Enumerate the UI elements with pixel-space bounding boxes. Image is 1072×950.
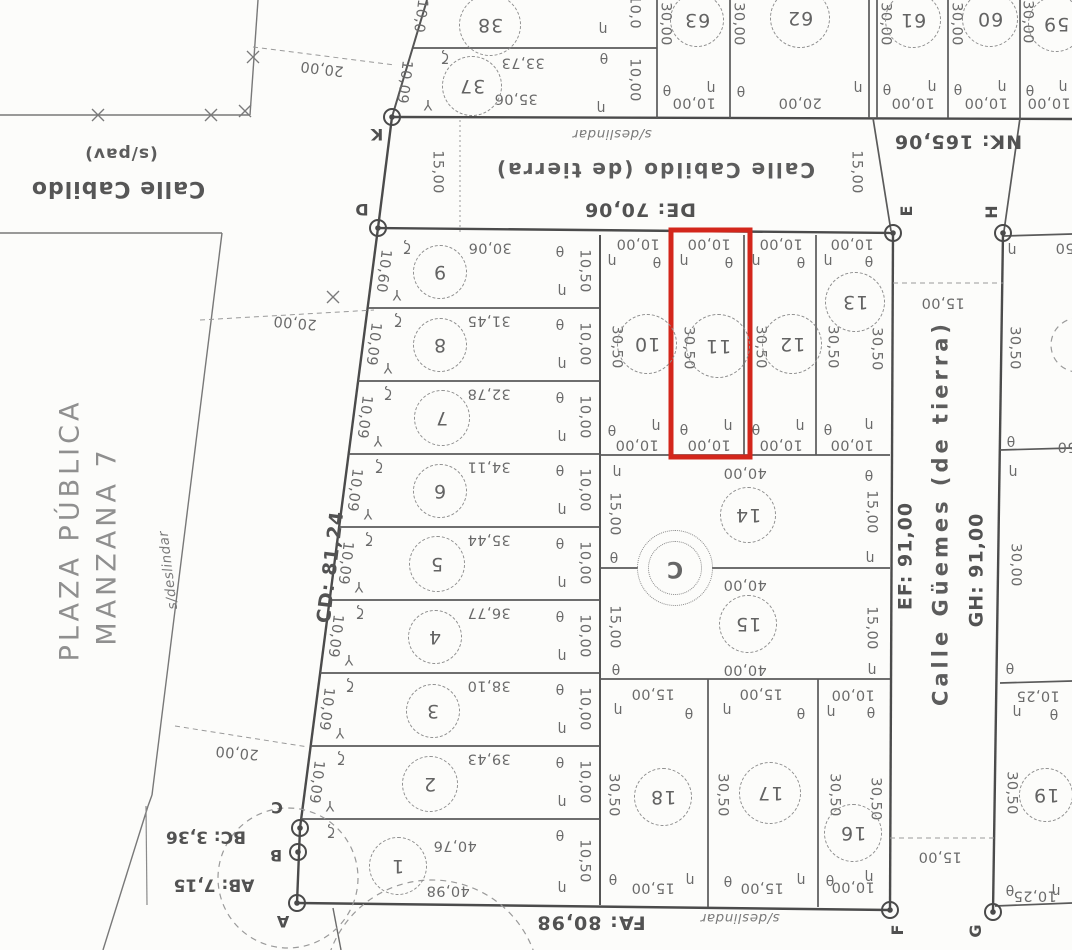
dimension-label: 15,00 bbox=[430, 150, 445, 194]
lot-number-circle-61: 61 bbox=[885, 0, 941, 48]
angle-symbol: η bbox=[652, 419, 661, 433]
lot-number-circle-63: 63 bbox=[670, 0, 724, 47]
dimension-label: 10,00 bbox=[616, 236, 660, 251]
lot-number-circle-59: 59 bbox=[1028, 0, 1072, 52]
dimension-label: 10,00 bbox=[577, 395, 592, 439]
angle-symbol: Y bbox=[326, 798, 335, 812]
angle-symbol: θ bbox=[867, 704, 876, 718]
dimension-label: 10,09 bbox=[363, 322, 383, 367]
dimension-label: 15,00 bbox=[739, 686, 783, 701]
angle-symbol: η bbox=[866, 551, 875, 565]
angle-symbol: θ bbox=[556, 389, 565, 403]
dimension-label: 10,00 bbox=[831, 687, 875, 702]
angle-symbol: η bbox=[1059, 80, 1068, 94]
lot-number-circle-62: 62 bbox=[770, 0, 830, 48]
lot-number: 5 bbox=[430, 553, 443, 575]
lot-number: 16 bbox=[840, 822, 866, 844]
angle-symbol: θ bbox=[685, 705, 694, 719]
lot-number-circle-16: 16 bbox=[824, 804, 882, 862]
vertex-label-h: H bbox=[984, 205, 1000, 218]
dimension-label: 10,0 bbox=[411, 0, 430, 34]
dimension-label: 10,00 bbox=[577, 614, 592, 658]
lot-number-circle-9: 9 bbox=[413, 245, 467, 299]
dimension-label: 33,73 bbox=[501, 55, 545, 70]
angle-symbol: θ bbox=[556, 462, 565, 476]
angle-symbol: θ bbox=[608, 422, 617, 436]
lot-number: 7 bbox=[435, 407, 448, 429]
dimension-label: 40,76 bbox=[433, 838, 477, 853]
lot-number: 38 bbox=[477, 14, 503, 36]
lot-number-circle-13: 13 bbox=[825, 272, 885, 332]
lot-number: 63 bbox=[684, 9, 710, 31]
angle-symbol: Y bbox=[424, 97, 433, 111]
angle-symbol: θ bbox=[1006, 882, 1015, 896]
angle-symbol: η bbox=[558, 430, 567, 444]
lot-number: 3 bbox=[426, 700, 439, 722]
lot-number-circle-1: 1 bbox=[369, 837, 427, 895]
angle-symbol: η bbox=[558, 649, 567, 663]
vertex-label-e: E bbox=[899, 206, 915, 217]
dimension-label: 40,98 bbox=[426, 883, 470, 898]
lot-number-circle-12: 12 bbox=[762, 314, 822, 374]
angle-symbol: η bbox=[686, 873, 695, 887]
dimension-label: 20,00 bbox=[273, 313, 318, 331]
angle-symbol: ζ bbox=[375, 459, 383, 473]
angle-symbol: η bbox=[752, 254, 761, 268]
dimension-label: 10,00 bbox=[830, 437, 874, 452]
angle-symbol: η bbox=[707, 81, 716, 95]
angle-symbol: η bbox=[558, 722, 567, 736]
dimension-label: 10,00 bbox=[627, 58, 642, 102]
dimension-label: 10,50 bbox=[577, 249, 592, 293]
lot-number: 8 bbox=[433, 334, 446, 356]
dimension-label: 10,00 bbox=[687, 437, 731, 452]
angle-symbol: ζ bbox=[356, 605, 364, 619]
lot-number-circle-6: 6 bbox=[413, 464, 467, 518]
angle-symbol: θ bbox=[609, 871, 618, 885]
lot-number: 13 bbox=[842, 291, 868, 313]
dimension-label: 10,00 bbox=[831, 879, 875, 894]
angle-symbol: Y bbox=[336, 725, 345, 739]
boundary-label-gh: GH: 91,00 bbox=[968, 513, 987, 628]
dimension-label: 10,00 bbox=[577, 322, 592, 366]
street-name-guemes: Calle Güemes (de tierra) bbox=[931, 320, 952, 706]
dimension-label: 40,00 bbox=[723, 577, 767, 592]
boundary-label-bc: BC: 3,36 bbox=[166, 828, 246, 845]
lot-number-circle-18: 18 bbox=[634, 768, 692, 826]
angle-symbol: η bbox=[723, 703, 732, 717]
dimension-label: 10,09 bbox=[306, 760, 326, 805]
angle-symbol: θ bbox=[1006, 660, 1015, 674]
lot-number: 9 bbox=[433, 261, 446, 283]
angle-symbol: ζ bbox=[384, 386, 392, 400]
dimension-label: 10,00 bbox=[687, 236, 731, 251]
angle-symbol: θ bbox=[737, 83, 746, 97]
boundary-label-fa: FA: 80,98 bbox=[536, 913, 645, 932]
angle-symbol: η bbox=[1052, 884, 1061, 898]
angle-symbol: η bbox=[614, 703, 623, 717]
lot-number: 14 bbox=[735, 504, 761, 526]
dimension-label: 40,00 bbox=[723, 465, 767, 480]
note-deslindar-plaza: s/deslindar bbox=[157, 530, 180, 611]
dimension-label: 30,50 bbox=[606, 773, 621, 817]
angle-symbol: η bbox=[998, 80, 1007, 94]
dimension-label: 10,09 bbox=[325, 614, 345, 659]
angle-symbol: ζ bbox=[394, 313, 402, 327]
angle-symbol: η bbox=[597, 101, 606, 115]
angle-symbol: η bbox=[558, 284, 567, 298]
angle-symbol: ζ bbox=[365, 532, 373, 546]
dimension-label: 10,25 bbox=[1016, 688, 1060, 703]
dimension-label: 15,00 bbox=[849, 150, 864, 194]
dimension-label: 30,06 bbox=[468, 240, 512, 255]
angle-symbol: η bbox=[558, 795, 567, 809]
angle-symbol: ζ bbox=[441, 50, 449, 64]
dimension-label: 10,0 bbox=[627, 0, 642, 29]
angle-symbol: η bbox=[854, 81, 863, 95]
dimension-label: 30,00 bbox=[731, 2, 746, 46]
lot-number: 19 bbox=[1033, 784, 1059, 806]
vertex-label-k: K bbox=[371, 126, 383, 142]
angle-symbol: θ bbox=[680, 421, 689, 435]
angle-symbol: θ bbox=[653, 254, 662, 268]
dimension-label: 10,00 bbox=[830, 236, 874, 251]
plaza-name-line1: PLAZA PÚBLICA bbox=[57, 399, 84, 662]
boundary-label-ab: AB: 7,15 bbox=[174, 876, 255, 893]
vertex-label-a: A bbox=[277, 913, 289, 929]
dimension-label: 10,50 bbox=[1057, 439, 1072, 454]
dimension-label: 10,09 bbox=[394, 60, 414, 105]
dimension-label: 10,00 bbox=[672, 95, 716, 110]
angle-symbol: Y bbox=[364, 506, 373, 520]
plan-labels-layer: Calle Cabildo(s/pav)Calle Cabildo (de ti… bbox=[0, 0, 1072, 950]
lot-number: 59 bbox=[1043, 13, 1069, 35]
dimension-label: 10,00 bbox=[759, 437, 803, 452]
lot-number-circle-17: 17 bbox=[739, 762, 801, 824]
lot-number: 11 bbox=[705, 335, 731, 357]
street-name-cabildo-tierra: Calle Cabildo (de tierra) bbox=[495, 160, 815, 180]
angle-symbol: θ bbox=[556, 608, 565, 622]
angle-symbol: η bbox=[1009, 465, 1018, 479]
angle-symbol: η bbox=[558, 881, 567, 895]
angle-symbol: Y bbox=[345, 652, 354, 666]
dimension-label: 10,00 bbox=[615, 437, 659, 452]
angle-symbol: θ bbox=[556, 681, 565, 695]
lot-number-circle-2: 2 bbox=[402, 756, 458, 812]
angle-symbol: η bbox=[608, 254, 617, 268]
lot-number: 4 bbox=[428, 626, 441, 648]
dimension-label: 10,50 bbox=[1055, 240, 1072, 255]
survey-plan-page: Calle Cabildo(s/pav)Calle Cabildo (de ti… bbox=[0, 0, 1072, 950]
angle-symbol: θ bbox=[954, 81, 963, 95]
angle-symbol: θ bbox=[612, 661, 621, 675]
dimension-label: 15,00 bbox=[631, 686, 675, 701]
dimension-label: 30,50 bbox=[825, 325, 840, 369]
angle-symbol: θ bbox=[1007, 433, 1016, 447]
dimension-label: 10,50 bbox=[577, 839, 592, 883]
dimension-label: 15,00 bbox=[740, 880, 784, 895]
dimension-label: 10,00 bbox=[577, 760, 592, 804]
dimension-label: 10,00 bbox=[577, 541, 592, 585]
angle-symbol: θ bbox=[724, 873, 733, 887]
lot-number-circle-10: 10 bbox=[617, 314, 677, 374]
lot-number: 15 bbox=[735, 613, 761, 635]
angle-symbol: η bbox=[865, 418, 874, 432]
dimension-label: 35,44 bbox=[467, 532, 511, 547]
angle-symbol: θ bbox=[663, 82, 672, 96]
dimension-label: 36,77 bbox=[467, 605, 511, 620]
dimension-label: 30,50 bbox=[1004, 771, 1019, 815]
vertex-label-b: B bbox=[270, 847, 282, 863]
angle-symbol: ζ bbox=[327, 824, 335, 838]
lot-number: 6 bbox=[433, 480, 446, 502]
angle-symbol: η bbox=[558, 576, 567, 590]
lot-number: 2 bbox=[423, 773, 436, 795]
angle-symbol: θ bbox=[865, 253, 874, 267]
dimension-label: 10,09 bbox=[354, 395, 374, 440]
note-deslindar-north: s/deslindar bbox=[572, 126, 651, 140]
dimension-label: 15,00 bbox=[607, 492, 622, 536]
angle-symbol: θ bbox=[556, 243, 565, 257]
dimension-label: 30,50 bbox=[1007, 326, 1022, 370]
vertex-label-f: F bbox=[890, 925, 906, 936]
dimension-label: 15,00 bbox=[921, 295, 965, 310]
angle-symbol: η bbox=[796, 419, 805, 433]
angle-symbol: θ bbox=[556, 535, 565, 549]
angle-symbol: θ bbox=[1026, 82, 1035, 96]
lot-number-circle-19: 19 bbox=[1019, 768, 1072, 822]
angle-symbol: Y bbox=[384, 360, 393, 374]
vertex-label-d: D bbox=[355, 201, 368, 217]
dimension-label: 30,00 bbox=[949, 2, 964, 46]
angle-symbol: θ bbox=[797, 254, 806, 268]
lot-number: 17 bbox=[757, 782, 783, 804]
angle-symbol: θ bbox=[752, 421, 761, 435]
vertex-label-c: C bbox=[271, 799, 283, 815]
angle-symbol: η bbox=[797, 873, 806, 887]
lot-number: 1 bbox=[391, 855, 404, 877]
dimension-label: 10,09 bbox=[344, 468, 364, 513]
dimension-label: 32,78 bbox=[467, 386, 511, 401]
street-note-spav: (s/pav) bbox=[84, 145, 158, 162]
dimension-label: 10,00 bbox=[891, 95, 935, 110]
lot-number: 18 bbox=[650, 786, 676, 808]
angle-symbol: θ bbox=[883, 81, 892, 95]
dimension-label: 38,10 bbox=[467, 678, 511, 693]
plaza-name-line2: MANZANA 7 bbox=[94, 446, 121, 645]
angle-symbol: Y bbox=[393, 287, 402, 301]
angle-symbol: θ bbox=[600, 50, 609, 64]
lot-number-circle-37: 37 bbox=[442, 56, 502, 116]
dimension-label: 10,60 bbox=[373, 249, 393, 294]
dimension-label: 10,25 bbox=[1013, 888, 1057, 903]
dimension-label: 15,00 bbox=[631, 880, 675, 895]
angle-symbol: Y bbox=[355, 579, 364, 593]
vertex-label-g: G bbox=[968, 924, 984, 937]
angle-symbol: η bbox=[1008, 243, 1017, 257]
angle-symbol: θ bbox=[610, 549, 619, 563]
lot-number-circle-38: 38 bbox=[459, 0, 521, 56]
angle-symbol: η bbox=[827, 705, 836, 719]
angle-symbol: ζ bbox=[337, 751, 345, 765]
boundary-label-ef: EF: 91,00 bbox=[897, 502, 916, 610]
dimension-label: 15,00 bbox=[864, 490, 879, 534]
lot-number-circle-4: 4 bbox=[408, 610, 462, 664]
dimension-label: 31,45 bbox=[467, 313, 511, 328]
dimension-label: 15,00 bbox=[918, 849, 962, 864]
lot-number: 12 bbox=[779, 333, 805, 355]
angle-symbol: η bbox=[928, 80, 937, 94]
angle-symbol: Y bbox=[374, 433, 383, 447]
dimension-label: 30,50 bbox=[869, 327, 884, 371]
angle-symbol: η bbox=[824, 254, 833, 268]
angle-symbol: η bbox=[599, 22, 608, 36]
angle-symbol: η bbox=[558, 503, 567, 517]
angle-symbol: θ bbox=[556, 827, 565, 841]
angle-symbol: θ bbox=[556, 754, 565, 768]
dimension-label: 30,00 bbox=[1008, 543, 1023, 587]
monument-marker-c: C bbox=[637, 530, 713, 606]
angle-symbol: η bbox=[613, 465, 622, 479]
lot-number: 61 bbox=[900, 9, 926, 31]
lot-number: 62 bbox=[787, 7, 813, 29]
lot-number-circle-8: 8 bbox=[413, 318, 467, 372]
dimension-label: 10,00 bbox=[577, 468, 592, 512]
angle-symbol: ζ bbox=[346, 678, 354, 692]
dimension-label: 39,43 bbox=[467, 751, 511, 766]
angle-symbol: ζ bbox=[403, 240, 411, 254]
lot-number: 10 bbox=[634, 333, 660, 355]
dimension-label: 10,00 bbox=[759, 236, 803, 251]
boundary-label-nk: NK: 165,06 bbox=[894, 132, 1022, 151]
angle-symbol: θ bbox=[556, 316, 565, 330]
street-name-cabildo-pav: Calle Cabildo bbox=[31, 177, 205, 199]
dimension-label: 10,09 bbox=[316, 687, 336, 732]
lot-number-circle-15: 15 bbox=[719, 595, 777, 653]
angle-symbol: η bbox=[724, 419, 733, 433]
dimension-label: 20,00 bbox=[215, 743, 260, 761]
lot-number-circle-11: 11 bbox=[686, 314, 750, 378]
lot-number-circle-7: 7 bbox=[414, 390, 470, 446]
dimension-label: 15,00 bbox=[607, 605, 622, 649]
angle-symbol: η bbox=[680, 254, 689, 268]
angle-symbol: η bbox=[558, 357, 567, 371]
monument-label: C bbox=[667, 557, 683, 579]
dimension-label: 20,00 bbox=[778, 95, 822, 110]
dimension-label: 30,50 bbox=[715, 773, 730, 817]
lot-number-circle-14: 14 bbox=[720, 487, 776, 543]
dimension-label: 10,00 bbox=[964, 95, 1008, 110]
angle-symbol: θ bbox=[797, 705, 806, 719]
lot-number: 60 bbox=[977, 8, 1003, 30]
lot-number-circle-3: 3 bbox=[406, 684, 460, 738]
angle-symbol: θ bbox=[865, 467, 874, 481]
angle-symbol: η bbox=[1013, 705, 1022, 719]
monument-marker-inner: C bbox=[648, 541, 702, 595]
note-deslindar-south: s/deslindar bbox=[700, 910, 779, 924]
lot-number-circle-5: 5 bbox=[409, 536, 465, 592]
angle-symbol: η bbox=[868, 663, 877, 677]
angle-symbol: θ bbox=[1050, 706, 1059, 720]
angle-symbol: θ bbox=[725, 254, 734, 268]
dimension-label: 10,00 bbox=[577, 687, 592, 731]
dimension-label: 10,09 bbox=[335, 541, 355, 586]
dimension-label: 34,11 bbox=[467, 459, 511, 474]
dimension-label: 20,00 bbox=[300, 58, 345, 78]
boundary-label-de: DE: 70,06 bbox=[584, 200, 696, 219]
lot-number: 37 bbox=[459, 75, 485, 97]
angle-symbol: θ bbox=[824, 421, 833, 435]
dimension-label: 15,00 bbox=[864, 606, 879, 650]
lot-number-circle-60: 60 bbox=[962, 0, 1018, 47]
dimension-label: 40,00 bbox=[723, 662, 767, 677]
